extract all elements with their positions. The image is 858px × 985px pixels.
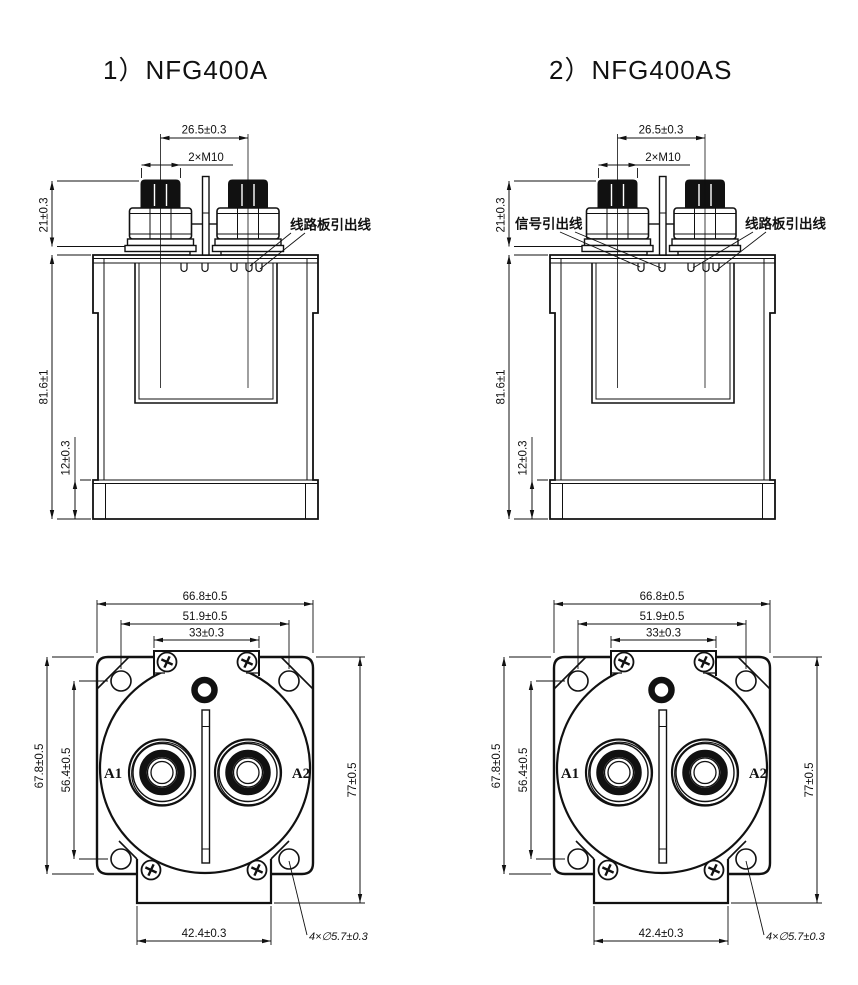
bottom-view-nfg400as xyxy=(491,591,826,945)
bottom-device-use xyxy=(97,651,313,903)
pcb-leads-label: 线路板引出线 xyxy=(290,217,371,233)
front-view-nfg400a: 线路板引出线 xyxy=(39,125,372,520)
front-device-use xyxy=(93,177,318,520)
signal-leads-label: 信号引出线 xyxy=(515,216,583,232)
front-view-nfg400as: 信号引出线 线路板引出线 xyxy=(496,125,827,520)
front-device-use xyxy=(550,177,775,520)
technical-drawing-svg: 26.5±0.3 2×M10 21±0.3 81.6±1 12±0.3 xyxy=(0,0,858,985)
pcb-leads-label: 线路板引出线 xyxy=(745,216,826,232)
bottom-device-use xyxy=(554,651,770,903)
drawing-sheet: 1）NFG400A 2）NFG400AS xyxy=(0,0,858,985)
bottom-view-nfg400a xyxy=(34,591,369,945)
